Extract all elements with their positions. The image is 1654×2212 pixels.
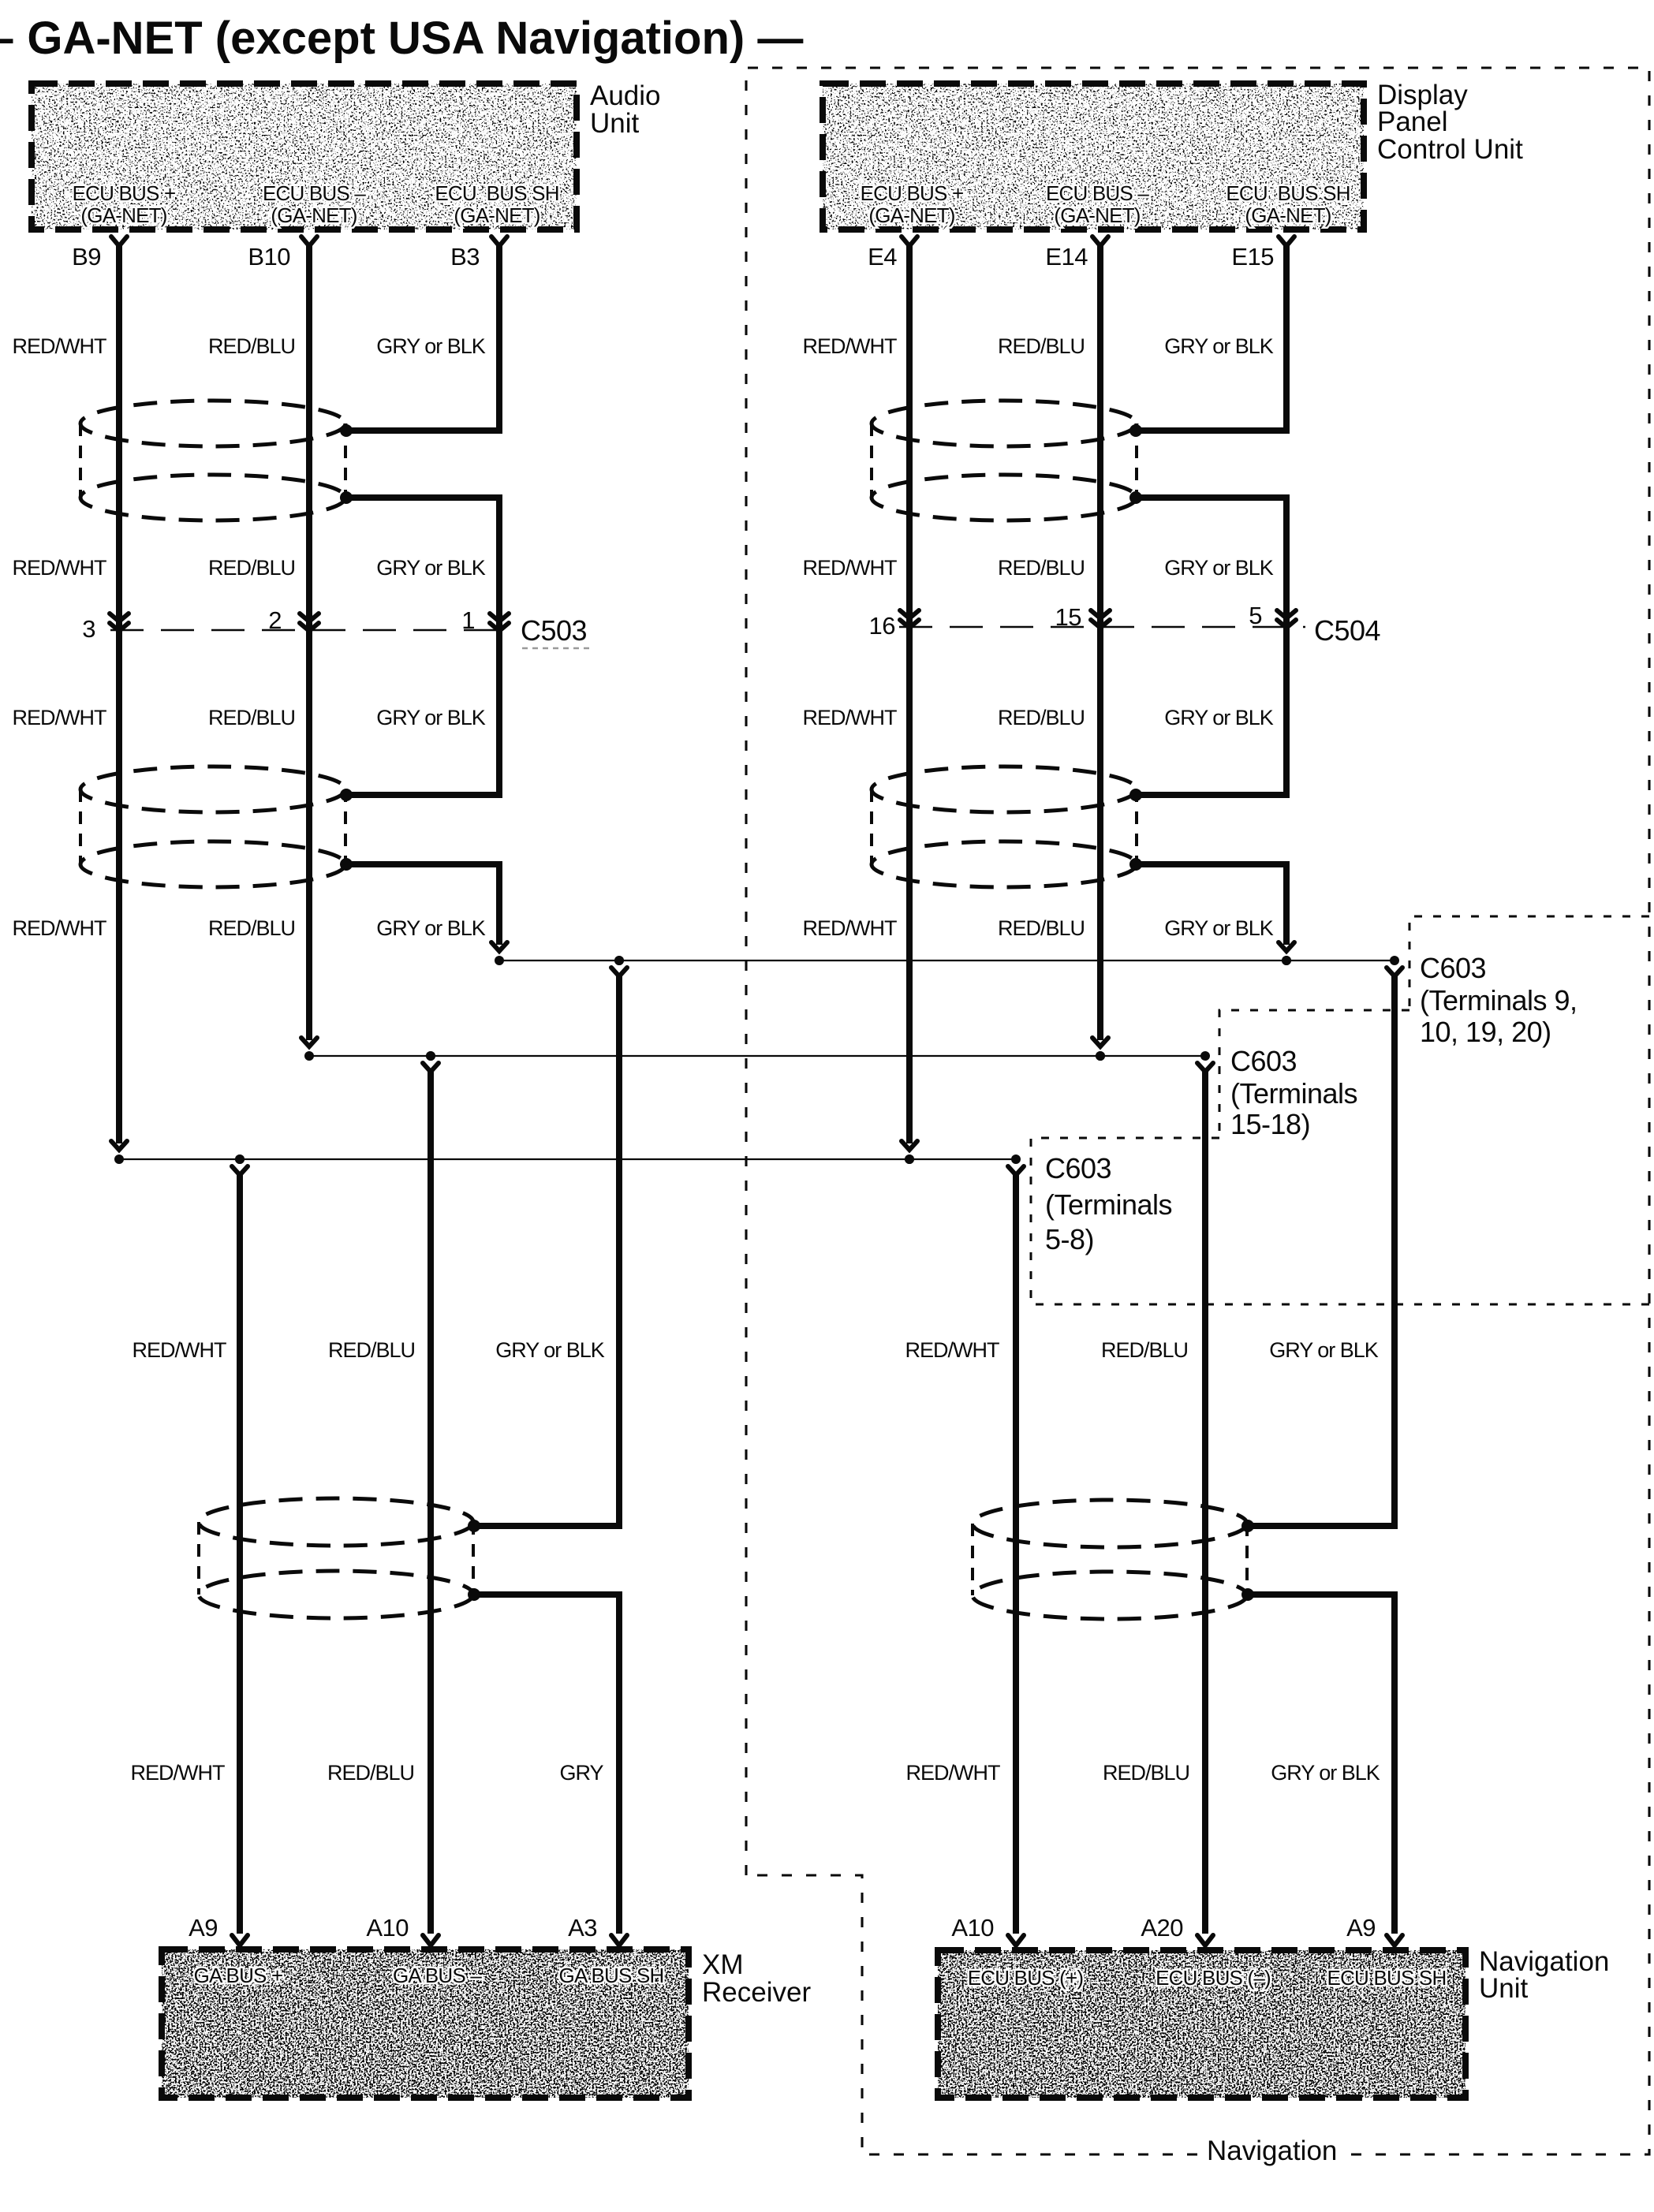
- svg-text:B9: B9: [72, 243, 101, 270]
- svg-text:A20: A20: [1141, 1914, 1183, 1942]
- svg-text:(GA-NET): (GA-NET): [1245, 203, 1331, 227]
- svg-text:ECU BUS +: ECU BUS +: [861, 181, 964, 205]
- svg-text:RED/WHT: RED/WHT: [13, 706, 106, 729]
- svg-text:5: 5: [1249, 602, 1262, 629]
- svg-text:15-18): 15-18): [1230, 1108, 1310, 1140]
- svg-text:Unit: Unit: [590, 108, 640, 139]
- svg-text:E4: E4: [868, 243, 897, 270]
- svg-text:RED/WHT: RED/WHT: [803, 916, 897, 940]
- svg-text:RED/WHT: RED/WHT: [803, 334, 897, 358]
- svg-text:Navigation: Navigation: [1207, 2136, 1337, 2166]
- svg-text:RED/BLU: RED/BLU: [208, 334, 295, 358]
- svg-text:ECU BUS SH: ECU BUS SH: [1226, 181, 1350, 205]
- svg-text:RED/BLU: RED/BLU: [1101, 1338, 1188, 1362]
- svg-text:(GA-NET): (GA-NET): [1054, 203, 1140, 227]
- svg-text:(GA-NET): (GA-NET): [454, 203, 540, 227]
- svg-text:RED/WHT: RED/WHT: [131, 1761, 225, 1785]
- svg-text:C504: C504: [1314, 614, 1380, 647]
- svg-text:RED/WHT: RED/WHT: [13, 556, 106, 580]
- svg-text:RED/WHT: RED/WHT: [803, 556, 897, 580]
- svg-text:Audio: Audio: [590, 80, 661, 111]
- svg-text:GRY or BLK: GRY or BLK: [1164, 334, 1274, 358]
- svg-text:Control Unit: Control Unit: [1377, 134, 1523, 165]
- svg-text:RED/BLU: RED/BLU: [998, 916, 1085, 940]
- svg-text:10, 19, 20): 10, 19, 20): [1420, 1016, 1551, 1048]
- svg-text:ECU BUS SH: ECU BUS SH: [1327, 1966, 1447, 1990]
- svg-text:ECU BUS –: ECU BUS –: [263, 181, 366, 205]
- svg-text:C603: C603: [1045, 1152, 1111, 1184]
- svg-text:A10: A10: [951, 1914, 994, 1942]
- svg-text:ECU BUS SH: ECU BUS SH: [435, 181, 558, 205]
- svg-text:RED/WHT: RED/WHT: [133, 1338, 226, 1362]
- svg-text:(GA-NET): (GA-NET): [868, 203, 954, 227]
- svg-text:Receiver: Receiver: [702, 1977, 811, 2008]
- svg-text:GRY or BLK: GRY or BLK: [1164, 706, 1274, 729]
- svg-text:GRY: GRY: [559, 1761, 603, 1785]
- svg-text:RED/WHT: RED/WHT: [905, 1338, 999, 1362]
- svg-text:ECU BUS (–): ECU BUS (–): [1156, 1966, 1271, 1990]
- svg-text:E14: E14: [1045, 243, 1088, 270]
- svg-text:GRY or BLK: GRY or BLK: [1164, 556, 1274, 580]
- svg-text:Unit: Unit: [1479, 1973, 1529, 2004]
- svg-text:XM: XM: [702, 1949, 744, 1980]
- svg-text:GRY or BLK: GRY or BLK: [1271, 1761, 1380, 1785]
- svg-text:GRY or BLK: GRY or BLK: [376, 706, 486, 729]
- svg-text:5-8): 5-8): [1045, 1223, 1094, 1255]
- svg-text:RED/BLU: RED/BLU: [327, 1761, 414, 1785]
- svg-text:A10: A10: [366, 1914, 409, 1942]
- svg-text:C603: C603: [1230, 1045, 1297, 1077]
- svg-text:ECU BUS –: ECU BUS –: [1046, 181, 1149, 205]
- svg-text:RED/BLU: RED/BLU: [998, 706, 1085, 729]
- svg-text:RED/BLU: RED/BLU: [998, 334, 1085, 358]
- svg-text:GA BUS +: GA BUS +: [194, 1964, 283, 1987]
- svg-text:A3: A3: [568, 1914, 597, 1942]
- svg-text:GRY or BLK: GRY or BLK: [1269, 1338, 1379, 1362]
- svg-text:RED/BLU: RED/BLU: [208, 706, 295, 729]
- svg-text:GRY or BLK: GRY or BLK: [376, 334, 486, 358]
- svg-text:RED/BLU: RED/BLU: [208, 556, 295, 580]
- svg-text:B10: B10: [248, 243, 290, 270]
- svg-text:GA BUS SH: GA BUS SH: [559, 1964, 664, 1987]
- svg-text:GRY or BLK: GRY or BLK: [376, 916, 486, 940]
- svg-text:– GA-NET (except USA Navigatio: – GA-NET (except USA Navigation) —: [0, 13, 803, 64]
- svg-text:RED/WHT: RED/WHT: [803, 706, 897, 729]
- svg-text:Panel: Panel: [1377, 106, 1448, 137]
- svg-text:E15: E15: [1231, 243, 1274, 270]
- svg-text:A9: A9: [189, 1914, 218, 1942]
- svg-text:GRY or BLK: GRY or BLK: [1164, 916, 1274, 940]
- svg-text:16: 16: [869, 612, 895, 640]
- svg-text:GRY or BLK: GRY or BLK: [376, 556, 486, 580]
- svg-text:RED/BLU: RED/BLU: [208, 916, 295, 940]
- svg-text:2: 2: [268, 606, 282, 634]
- svg-text:A9: A9: [1346, 1914, 1376, 1942]
- svg-text:ECU BUS (+): ECU BUS (+): [968, 1966, 1084, 1990]
- svg-text:GA BUS –: GA BUS –: [393, 1964, 482, 1987]
- svg-text:ECU BUS +: ECU BUS +: [73, 181, 176, 205]
- svg-text:(Terminals: (Terminals: [1230, 1077, 1357, 1110]
- svg-text:(GA-NET): (GA-NET): [271, 203, 357, 227]
- svg-text:C503: C503: [521, 614, 587, 647]
- svg-text:(Terminals 9,: (Terminals 9,: [1420, 984, 1577, 1016]
- svg-text:RED/BLU: RED/BLU: [328, 1338, 415, 1362]
- svg-text:15: 15: [1055, 603, 1081, 631]
- svg-text:C603: C603: [1420, 952, 1486, 984]
- svg-text:3: 3: [82, 615, 95, 643]
- svg-text:RED/BLU: RED/BLU: [1103, 1761, 1189, 1785]
- svg-text:RED/WHT: RED/WHT: [13, 334, 106, 358]
- svg-text:RED/BLU: RED/BLU: [998, 556, 1085, 580]
- svg-text:RED/WHT: RED/WHT: [906, 1761, 1000, 1785]
- svg-text:GRY or BLK: GRY or BLK: [495, 1338, 605, 1362]
- svg-text:(GA-NET): (GA-NET): [80, 203, 166, 227]
- svg-text:B3: B3: [450, 243, 480, 270]
- svg-text:1: 1: [461, 606, 475, 634]
- svg-text:(Terminals: (Terminals: [1045, 1188, 1172, 1221]
- svg-text:RED/WHT: RED/WHT: [13, 916, 106, 940]
